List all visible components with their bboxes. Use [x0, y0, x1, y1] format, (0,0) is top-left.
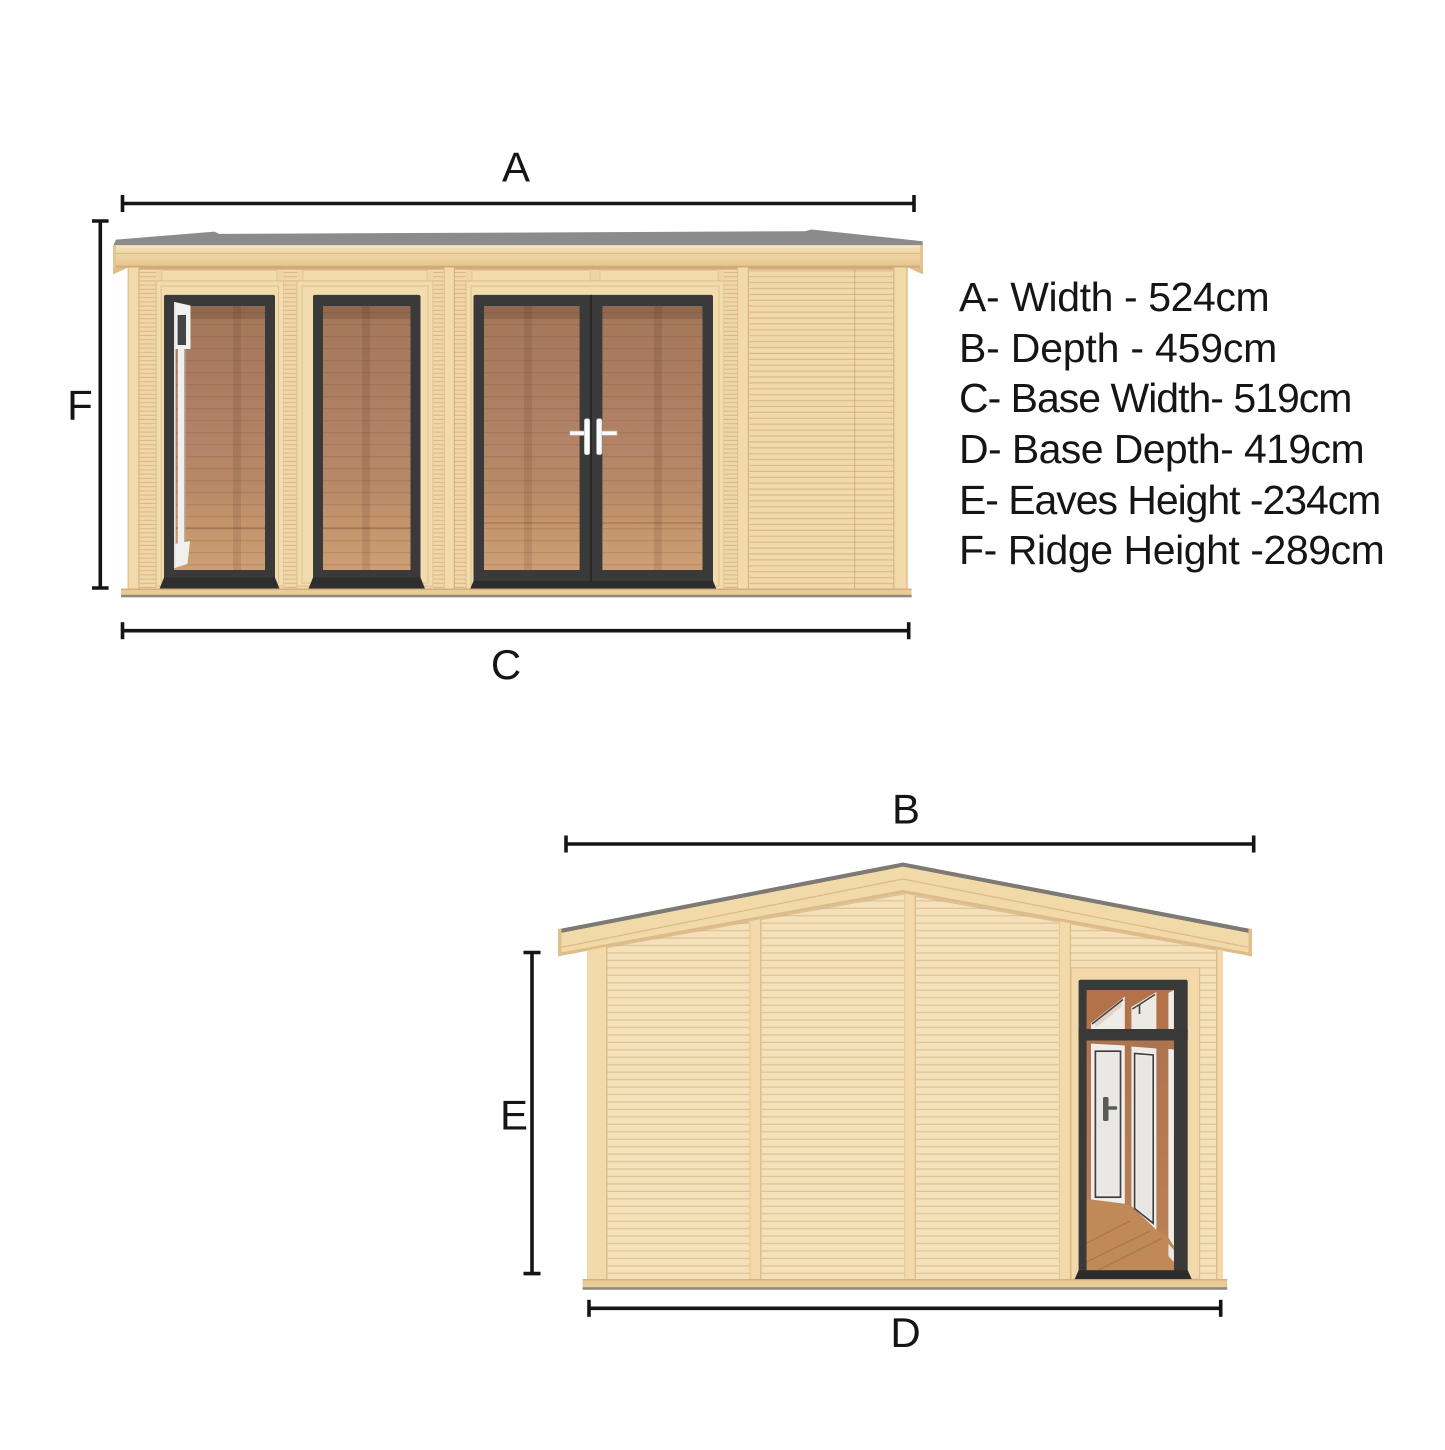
svg-text:A: A	[502, 144, 530, 191]
svg-text:F: F	[67, 382, 93, 429]
svg-text:D- Base Depth- 419cm: D- Base Depth- 419cm	[959, 426, 1364, 472]
svg-text:B: B	[892, 786, 920, 833]
svg-text:D: D	[890, 1309, 920, 1356]
svg-text:A- Width - 524cm: A- Width - 524cm	[959, 274, 1269, 320]
svg-text:F- Ridge Height -289cm: F- Ridge Height -289cm	[959, 527, 1384, 573]
svg-text:C- Base Width- 519cm: C- Base Width- 519cm	[959, 375, 1351, 421]
svg-text:E: E	[500, 1092, 528, 1139]
svg-text:E- Eaves Height -234cm: E- Eaves Height -234cm	[959, 477, 1380, 523]
svg-text:B- Depth - 459cm: B- Depth - 459cm	[959, 325, 1277, 371]
svg-text:C: C	[491, 641, 521, 688]
